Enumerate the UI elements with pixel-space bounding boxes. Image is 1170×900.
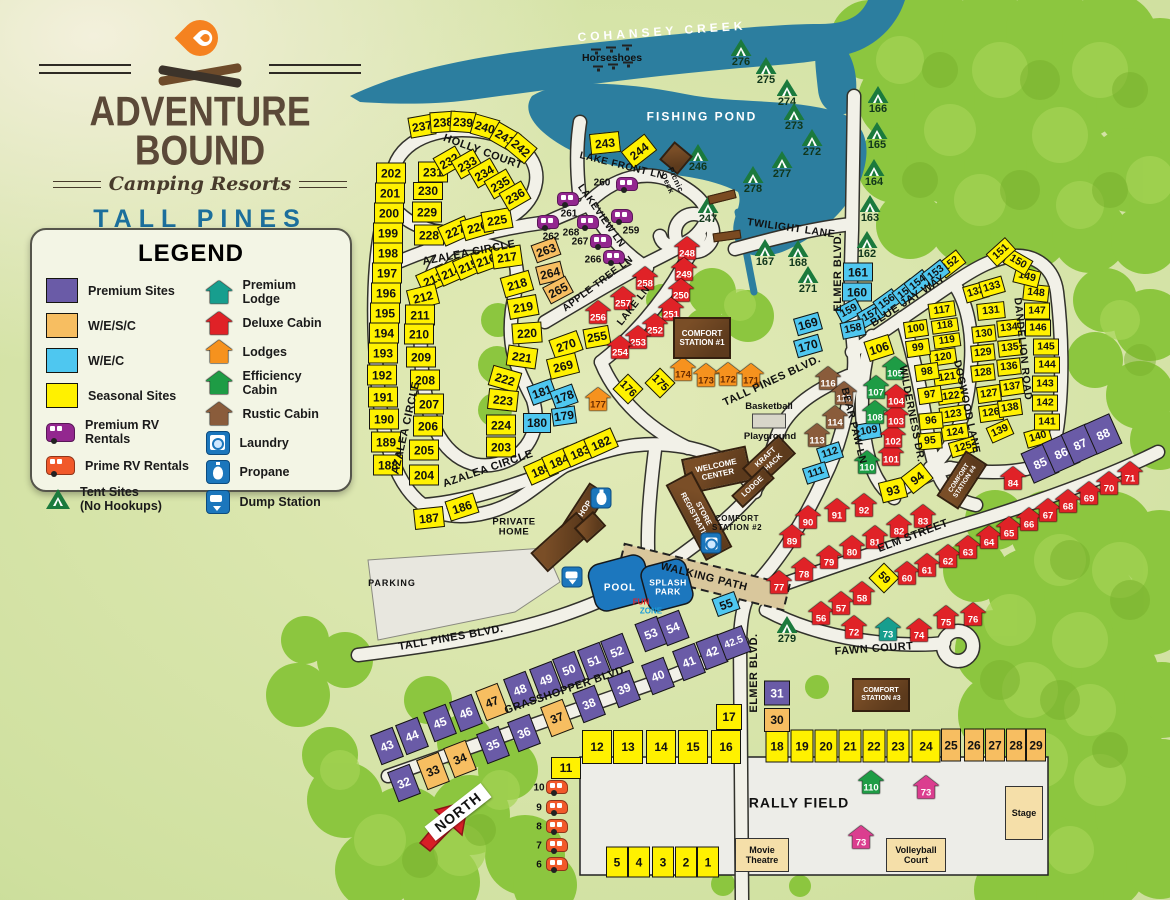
site-133[interactable]: 133 <box>978 276 1006 299</box>
horseshoe-stake-icon <box>593 66 603 73</box>
site-13[interactable]: 13 <box>613 730 643 764</box>
site-23[interactable]: 23 <box>887 730 910 763</box>
rv-rental-8[interactable]: 8 <box>546 819 568 833</box>
legend-item-efficiency-cabin: Efficiency Cabin <box>206 369 337 397</box>
site-4[interactable]: 4 <box>628 847 650 878</box>
site-142[interactable]: 142 <box>1032 395 1058 412</box>
cabin-254[interactable]: 254 <box>607 336 633 359</box>
tent-site-164[interactable]: 164 <box>859 159 889 191</box>
site-195[interactable]: 195 <box>370 303 400 324</box>
label-private: PRIVATE HOME <box>492 518 535 539</box>
cabin-73[interactable]: 73 <box>875 618 901 641</box>
legend-b-swatch-icon <box>46 348 78 373</box>
label-cohansey-creek: COHANSEY CREEK <box>577 20 747 45</box>
site-269[interactable]: 269 <box>546 352 580 380</box>
site-35[interactable]: 35 <box>476 726 510 764</box>
legend-propane-swatch-icon <box>206 460 230 484</box>
legend-y-swatch-icon <box>46 383 78 408</box>
logo-title: ADVENTURE BOUND <box>42 92 359 171</box>
legend-panel: LEGEND Premium SitesW/E/S/CW/E/CSeasonal… <box>30 228 352 492</box>
site-161[interactable]: 161 <box>843 263 873 282</box>
legend-item-label: W/E/C <box>88 354 124 368</box>
label-twilight-lane: TWILIGHT LANE <box>746 217 835 241</box>
site-141[interactable]: 141 <box>1034 414 1060 431</box>
cabin-110[interactable]: 110 <box>858 771 884 794</box>
site-18[interactable]: 18 <box>766 730 789 763</box>
legend-title: LEGEND <box>46 240 336 268</box>
legend-dump-swatch-icon <box>206 490 230 514</box>
legend-laundry-swatch-icon <box>206 431 230 455</box>
label-fishing-pond: FISHING POND <box>647 110 758 123</box>
cabin-248[interactable]: 248 <box>674 237 700 260</box>
site-221[interactable]: 221 <box>506 345 539 370</box>
building-movie[interactable]: Movie Theatre <box>735 838 789 872</box>
legend-right-column: Premium LodgeDeluxe CabinLodgesEfficienc… <box>206 278 337 514</box>
site-190[interactable]: 190 <box>369 409 399 430</box>
site-139[interactable]: 139 <box>986 418 1015 443</box>
horseshoe-stake-icon <box>608 64 618 71</box>
tent-site-271[interactable]: 271 <box>793 266 823 298</box>
legend-cbl-swatch-icon <box>206 340 233 363</box>
site-119[interactable]: 119 <box>933 332 962 350</box>
legend-item-label: Premium RV Rentals <box>85 418 206 446</box>
site-199[interactable]: 199 <box>373 223 403 244</box>
site-193[interactable]: 193 <box>368 343 398 364</box>
legend-item-premium-lodge: Premium Lodge <box>206 278 337 306</box>
site-204[interactable]: 204 <box>409 465 439 486</box>
site-20[interactable]: 20 <box>815 730 838 763</box>
site-25[interactable]: 25 <box>941 729 961 762</box>
label-rally-field: RALLY FIELD <box>749 795 849 810</box>
site-196[interactable]: 196 <box>371 283 401 304</box>
site-198[interactable]: 198 <box>373 243 403 264</box>
rv-rental-261[interactable]: 261 <box>557 192 579 206</box>
rv-rental-260[interactable]: 260 <box>616 177 638 191</box>
legend-item-label: W/E/S/C <box>88 319 136 333</box>
site-194[interactable]: 194 <box>369 323 399 344</box>
site-186[interactable]: 186 <box>444 492 479 521</box>
cabin-58[interactable]: 58 <box>849 582 875 605</box>
site-40[interactable]: 40 <box>641 657 675 695</box>
cabin-71[interactable]: 71 <box>1117 462 1143 485</box>
site-160[interactable]: 160 <box>842 283 872 302</box>
tent-site-279[interactable]: 279 <box>772 616 802 648</box>
site-179[interactable]: 179 <box>551 405 577 426</box>
tent-site-272[interactable]: 272 <box>797 129 827 161</box>
legend-item-label: Tent Sites (No Hookups) <box>80 485 162 513</box>
label-fawn-court: FAWN COURT <box>834 640 914 658</box>
label-zone: ZONE <box>640 608 662 617</box>
site-100[interactable]: 100 <box>903 319 929 339</box>
legend-o-swatch-icon <box>46 313 78 338</box>
horseshoe-stake-icon <box>622 45 632 52</box>
legend-item-label: Laundry <box>240 436 289 450</box>
site-24[interactable]: 24 <box>912 730 941 763</box>
cabin-108[interactable]: 108 <box>862 401 888 424</box>
rv-rental-9[interactable]: 9 <box>546 800 568 814</box>
cabin-72[interactable]: 72 <box>841 616 867 639</box>
site-191[interactable]: 191 <box>368 387 398 408</box>
cabin-249[interactable]: 249 <box>671 258 697 281</box>
rv-rental-262[interactable]: 262 <box>537 215 559 229</box>
legend-cbr-swatch-icon <box>206 402 233 425</box>
label-elmer-blvd: ELMER BLVD. <box>748 633 760 712</box>
cabin-61[interactable]: 61 <box>914 554 940 577</box>
site-26[interactable]: 26 <box>964 729 984 762</box>
label-playground: Playground <box>744 432 796 442</box>
site-187[interactable]: 187 <box>413 506 445 530</box>
building-comfort[interactable]: COMFORT STATION #1 <box>673 317 731 359</box>
site-218[interactable]: 218 <box>500 270 535 298</box>
tent-site-167[interactable]: 167 <box>750 239 780 271</box>
site-111[interactable]: 111 <box>802 461 830 485</box>
legend-rvp-swatch-icon <box>46 423 75 442</box>
site-17[interactable]: 17 <box>716 704 742 730</box>
legend-item-propane: Propane <box>206 460 337 484</box>
cabin-73[interactable]: 73 <box>913 776 939 799</box>
laundry-icon[interactable] <box>701 533 722 554</box>
tent-site-277[interactable]: 277 <box>767 151 797 183</box>
site-138[interactable]: 138 <box>997 398 1023 418</box>
cabin-177[interactable]: 177 <box>585 388 611 411</box>
legend-tent-swatch-icon <box>46 489 70 509</box>
site-219[interactable]: 219 <box>506 294 539 320</box>
label-splash: SPLASH PARK <box>649 579 686 598</box>
cabin-74[interactable]: 74 <box>906 619 932 642</box>
building-stage[interactable]: Stage <box>1005 786 1043 840</box>
legend-item-tent-sites: Tent Sites (No Hookups) <box>46 485 206 513</box>
legend-item-label: Efficiency Cabin <box>243 369 337 397</box>
site-223[interactable]: 223 <box>487 388 519 412</box>
site-210[interactable]: 210 <box>404 324 434 345</box>
site-11[interactable]: 11 <box>551 757 581 779</box>
legend-item-w-e-c: W/E/C <box>46 348 206 373</box>
legend-p-swatch-icon <box>46 278 78 303</box>
site-22[interactable]: 22 <box>863 730 886 763</box>
site-99[interactable]: 99 <box>905 338 931 358</box>
site-27[interactable]: 27 <box>985 729 1005 762</box>
site-220[interactable]: 220 <box>511 321 542 344</box>
site-14[interactable]: 14 <box>646 730 676 764</box>
site-21[interactable]: 21 <box>839 730 862 763</box>
legend-item-lodges: Lodges <box>206 340 337 363</box>
legend-item-label: Seasonal Sites <box>88 389 176 403</box>
site-224[interactable]: 224 <box>486 415 516 436</box>
site-158[interactable]: 158 <box>839 318 866 340</box>
legend-cbt-swatch-icon <box>206 281 233 304</box>
cabin-90[interactable]: 90 <box>795 506 821 529</box>
legend-item-label: Rustic Cabin <box>243 407 319 421</box>
cabin-73[interactable]: 73 <box>848 826 874 849</box>
legend-item-label: Deluxe Cabin <box>243 316 322 330</box>
site-201[interactable]: 201 <box>375 183 405 204</box>
horseshoe-stake-icon <box>623 62 633 69</box>
campground-map: 2022012001991981971961951941931921911901… <box>0 0 1170 900</box>
site-192[interactable]: 192 <box>367 365 397 386</box>
legend-cbd-swatch-icon <box>206 312 233 335</box>
site-15[interactable]: 15 <box>678 730 708 764</box>
site-12[interactable]: 12 <box>582 730 612 764</box>
site-28[interactable]: 28 <box>1006 729 1026 762</box>
site-97[interactable]: 97 <box>917 385 943 405</box>
legend-item-w-e-s-c: W/E/S/C <box>46 313 206 338</box>
logo-subtitle: Camping Resorts <box>53 173 347 195</box>
legend-item-label: Propane <box>240 465 290 479</box>
building-comfort[interactable]: COMFORT STATION #4 <box>936 450 987 509</box>
legend-left-column: Premium SitesW/E/S/CW/E/CSeasonal SitesP… <box>46 278 206 514</box>
tent-site-162[interactable]: 162 <box>852 231 882 263</box>
site-200[interactable]: 200 <box>374 203 404 224</box>
site-145[interactable]: 145 <box>1033 339 1059 356</box>
tent-site-278[interactable]: 278 <box>738 166 768 198</box>
legend-item-label: Dump Station <box>240 495 321 509</box>
legend-item-premium-sites: Premium Sites <box>46 278 206 303</box>
rv-rental-259[interactable]: 259 <box>611 209 633 223</box>
site-37[interactable]: 37 <box>540 699 574 737</box>
site-146[interactable]: 146 <box>1025 320 1051 337</box>
propane-icon[interactable] <box>591 488 612 509</box>
site-243[interactable]: 243 <box>589 131 621 155</box>
site-131[interactable]: 131 <box>976 301 1006 321</box>
legend-item-label: Prime RV Rentals <box>85 459 189 473</box>
site-129[interactable]: 129 <box>970 343 996 362</box>
dump-icon[interactable] <box>562 567 583 588</box>
cabin-78[interactable]: 78 <box>791 558 817 581</box>
label-comfort: COMFORT STATION #2 <box>712 515 762 533</box>
cabin-256[interactable]: 256 <box>585 301 611 324</box>
site-130[interactable]: 130 <box>971 324 997 343</box>
label-basketball: Basketball <box>745 402 793 412</box>
legend-item-rustic-cabin: Rustic Cabin <box>206 402 337 425</box>
cabin-76[interactable]: 76 <box>960 603 986 626</box>
site-96[interactable]: 96 <box>918 411 943 430</box>
north-arrow: NORTH <box>410 781 506 855</box>
rv-rental-7[interactable]: 7 <box>546 838 568 852</box>
site-144[interactable]: 144 <box>1034 357 1060 374</box>
site-30[interactable]: 30 <box>764 708 790 732</box>
label-parking: PARKING <box>368 579 416 589</box>
site-206[interactable]: 206 <box>413 416 443 437</box>
site-2[interactable]: 2 <box>675 847 697 878</box>
site-19[interactable]: 19 <box>791 730 814 763</box>
tent-site-166[interactable]: 166 <box>863 86 893 118</box>
legend-item-premium-rv-rentals: Premium RV Rentals <box>46 418 206 446</box>
site-36[interactable]: 36 <box>507 714 541 752</box>
cabin-92[interactable]: 92 <box>851 494 877 517</box>
legend-item-prime-rv-rentals: Prime RV Rentals <box>46 456 206 475</box>
horseshoe-stake-icon <box>591 49 601 56</box>
legend-item-laundry: Laundry <box>206 431 337 455</box>
rv-rental-6[interactable]: 6 <box>546 857 568 871</box>
legend-rvo-swatch-icon <box>46 456 75 475</box>
site-211[interactable]: 211 <box>405 305 435 326</box>
cabin-84[interactable]: 84 <box>1000 467 1026 490</box>
site-143[interactable]: 143 <box>1032 376 1058 393</box>
site-128[interactable]: 128 <box>970 363 996 382</box>
site-3[interactable]: 3 <box>652 847 674 878</box>
site-147[interactable]: 147 <box>1024 303 1050 320</box>
cabin-107[interactable]: 107 <box>863 376 889 399</box>
cabin-75[interactable]: 75 <box>933 606 959 629</box>
label-tall-pines-blvd: TALL PINES BLVD. <box>398 623 505 653</box>
site-202[interactable]: 202 <box>376 163 406 184</box>
legend-item-dump-station: Dump Station <box>206 490 337 514</box>
legend-item-label: Premium Lodge <box>243 278 337 306</box>
site-169[interactable]: 169 <box>793 312 823 336</box>
site-209[interactable]: 209 <box>406 347 436 368</box>
site-31[interactable]: 31 <box>764 681 790 706</box>
label-pool: POOL <box>604 583 636 594</box>
site-180[interactable]: 180 <box>523 413 551 433</box>
structure <box>752 414 786 429</box>
site-229[interactable]: 229 <box>412 202 442 223</box>
legend-item-seasonal-sites: Seasonal Sites <box>46 383 206 408</box>
legend-cbe-swatch-icon <box>206 371 233 394</box>
site-29[interactable]: 29 <box>1026 729 1046 762</box>
site-176[interactable]: 176 <box>612 373 643 404</box>
site-16[interactable]: 16 <box>711 730 741 764</box>
building-volleyball[interactable]: Volleyball Court <box>886 838 946 872</box>
site-34[interactable]: 34 <box>443 740 477 778</box>
site-205[interactable]: 205 <box>409 440 439 461</box>
legend-item-label: Lodges <box>243 345 287 359</box>
cabin-77[interactable]: 77 <box>766 571 792 594</box>
structure <box>713 230 742 243</box>
site-98[interactable]: 98 <box>914 362 940 382</box>
label-elmer-blvd: ELMER BLVD. <box>832 232 844 311</box>
cabin-113[interactable]: 113 <box>804 424 830 447</box>
tent-site-165[interactable]: 165 <box>862 122 892 154</box>
legend-item-deluxe-cabin: Deluxe Cabin <box>206 312 337 335</box>
rv-rental-10[interactable]: 10 <box>546 780 568 794</box>
logo: ADVENTURE BOUND Camping Resorts TALL PIN… <box>35 12 365 222</box>
building-comfort[interactable]: COMFORT STATION #3 <box>852 678 910 712</box>
tent-site-163[interactable]: 163 <box>855 195 885 227</box>
cabin-91[interactable]: 91 <box>824 499 850 522</box>
site-1[interactable]: 1 <box>697 847 719 878</box>
site-5[interactable]: 5 <box>606 847 628 878</box>
cabin-102[interactable]: 102 <box>880 425 906 448</box>
site-197[interactable]: 197 <box>372 263 402 284</box>
horseshoe-stake-icon <box>606 47 616 54</box>
campfire-icon <box>35 12 365 92</box>
legend-item-label: Premium Sites <box>88 284 175 298</box>
site-55[interactable]: 55 <box>711 591 740 617</box>
site-230[interactable]: 230 <box>413 182 443 200</box>
